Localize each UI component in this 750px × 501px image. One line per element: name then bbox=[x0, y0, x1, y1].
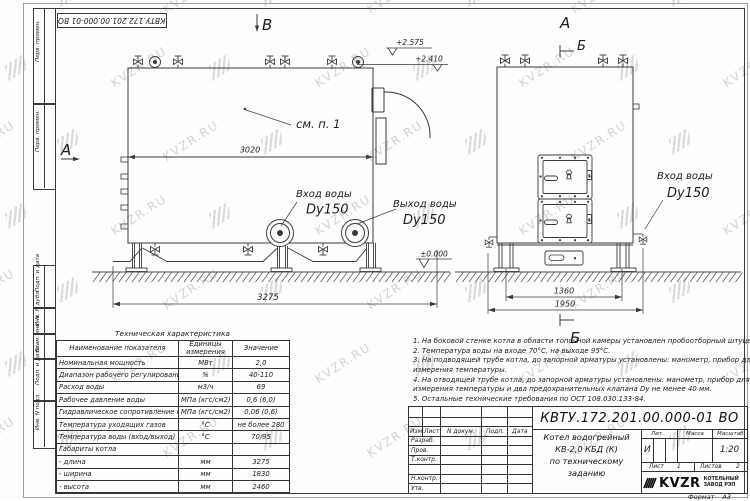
inlet-label: Вход воды bbox=[296, 189, 352, 200]
tb-sheet-value: 1 bbox=[677, 464, 681, 470]
note-line: измерения температуры. bbox=[413, 366, 745, 376]
tb-sheet-label: Лист bbox=[649, 464, 664, 470]
elevation-2410-label: +2.410 bbox=[415, 55, 443, 64]
dim-1360-label: 1360 bbox=[554, 287, 574, 296]
spring-icon bbox=[643, 476, 657, 490]
note-line: 5. Остальные технические требования по О… bbox=[413, 395, 745, 405]
company-logo: KVZR КОТЕЛЬНЫЙ ЗАВОД РЭП bbox=[643, 474, 745, 492]
side-view bbox=[485, 45, 663, 326]
see-note-label: см. п. 1 bbox=[296, 117, 340, 131]
title-block: Изм. Лист N докум. Подп. Дата Разраб. Пр… bbox=[408, 406, 748, 494]
tb-col-list: Лист bbox=[424, 428, 439, 435]
elevation-2575-label: +2.575 bbox=[396, 38, 424, 47]
tb-sheets-label: Листов bbox=[700, 464, 722, 470]
kvzr-watermark-text: KVZR.RU bbox=[0, 414, 17, 460]
upper-door bbox=[538, 155, 592, 199]
tb-lit-header: Лит. bbox=[651, 431, 664, 437]
tb-col-data: Дата bbox=[512, 428, 528, 435]
table-row: Диапазон рабочего регулирования%40-110 bbox=[57, 369, 290, 381]
tb-col-izm: Изм. bbox=[410, 428, 424, 435]
tb-scale-value: 1:20 bbox=[720, 445, 739, 455]
tb-scale-header: Масштаб bbox=[717, 431, 744, 437]
tb-mass-header: Масса bbox=[686, 431, 704, 437]
note-line: 1. На боковой стенке котла в области топ… bbox=[413, 337, 745, 347]
table-row: Температура уходящих газов°Сне более 280 bbox=[57, 418, 290, 430]
side-inlet-size-label: Dy150 bbox=[667, 186, 710, 201]
note-line: 3. На подводящей трубе котла, до запорно… bbox=[413, 356, 745, 366]
note-line: измерения температуры и два предохраните… bbox=[413, 385, 745, 395]
tb-row-prov: Пров. bbox=[411, 447, 428, 454]
table-row: Рабочее давление водыМПа (кгс/см2)0,6 (6… bbox=[57, 394, 290, 406]
drawing-sheet: KVZR.RUKVZR.RUKVZR.RUKVZR.RUKVZR.RUKVZR.… bbox=[0, 0, 750, 500]
outlet-size-label: Dy150 bbox=[403, 213, 446, 228]
table-row: Температура воды (вход/выход)°С70/95 bbox=[57, 431, 290, 443]
note-line: 2. Температура воды на входе 70°С, на вы… bbox=[413, 347, 745, 357]
lower-door bbox=[538, 199, 592, 243]
spec-table-title: Техническая характеристика bbox=[56, 329, 289, 338]
table-row: - длинамм3275 bbox=[57, 456, 290, 468]
elevation-zero-label: ±0.000 bbox=[420, 250, 448, 259]
table-row: - высотамм2460 bbox=[57, 480, 290, 492]
tb-col-ndokum: N докум. bbox=[447, 428, 475, 435]
engineering-drawing: 3020 3275 1360 1950 +2.575 +2.410 ±0.000… bbox=[0, 0, 750, 348]
tb-row-utv: Утв. bbox=[411, 485, 424, 492]
inlet-flange bbox=[267, 220, 294, 247]
table-row: - ширинамм1830 bbox=[57, 468, 290, 480]
spec-header-units: Единицы измерения bbox=[179, 341, 233, 357]
company-name: КОТЕЛЬНЫЙ ЗАВОД РЭП bbox=[704, 477, 739, 489]
section-b-top-label: Б bbox=[577, 39, 586, 54]
tb-row-nkontr: Н.контр. bbox=[411, 475, 438, 482]
outlet-flange bbox=[342, 220, 369, 247]
doc-number: КВТУ.172.201.00.000-01 ВО bbox=[532, 407, 747, 429]
doc-title: Котел водогрейный КВ-2,0 КБД (К) по техн… bbox=[532, 432, 641, 480]
table-row: Номинальная мощностьМВт2,0 bbox=[57, 357, 290, 369]
view-v-label: В bbox=[262, 16, 272, 34]
inlet-size-label: Dy150 bbox=[306, 203, 349, 218]
view-a-left-label: А bbox=[60, 141, 71, 159]
side-inlet-label: Вход воды bbox=[657, 171, 713, 182]
view-a-right-label: А bbox=[559, 14, 570, 32]
technical-notes: 1. На боковой стенке котла в области топ… bbox=[413, 337, 745, 405]
dim-3020-label: 3020 bbox=[240, 146, 260, 155]
dim-1950-label: 1950 bbox=[555, 300, 575, 309]
format-label: ФорматА3 bbox=[688, 493, 739, 501]
tb-row-tkontr: Т.контр. bbox=[411, 456, 437, 463]
table-row: Гидравлическое сопротивление котлаМПа (к… bbox=[57, 406, 290, 418]
table-row: Габариты котла bbox=[57, 443, 290, 455]
note-line: 4. На отводящей трубе котла, до запорной… bbox=[413, 376, 745, 386]
tb-col-podp: Подп. bbox=[486, 428, 504, 435]
table-row: Расход водым3/ч69 bbox=[57, 381, 290, 393]
tb-lit-value: И bbox=[644, 445, 651, 455]
tb-row-razrab: Разраб. bbox=[411, 437, 435, 444]
front-view bbox=[61, 14, 452, 308]
tb-sheets-value: 2 bbox=[736, 464, 740, 470]
spec-table: Наименование показателя Единицы измерени… bbox=[56, 340, 290, 493]
spec-header-value: Значение bbox=[233, 341, 290, 357]
company-logo-text: KVZR bbox=[659, 476, 701, 491]
spec-header-name: Наименование показателя bbox=[57, 341, 179, 357]
outlet-label: Выход воды bbox=[393, 199, 457, 210]
dim-3275-label: 3275 bbox=[257, 293, 279, 303]
ground-hatch bbox=[92, 272, 743, 282]
